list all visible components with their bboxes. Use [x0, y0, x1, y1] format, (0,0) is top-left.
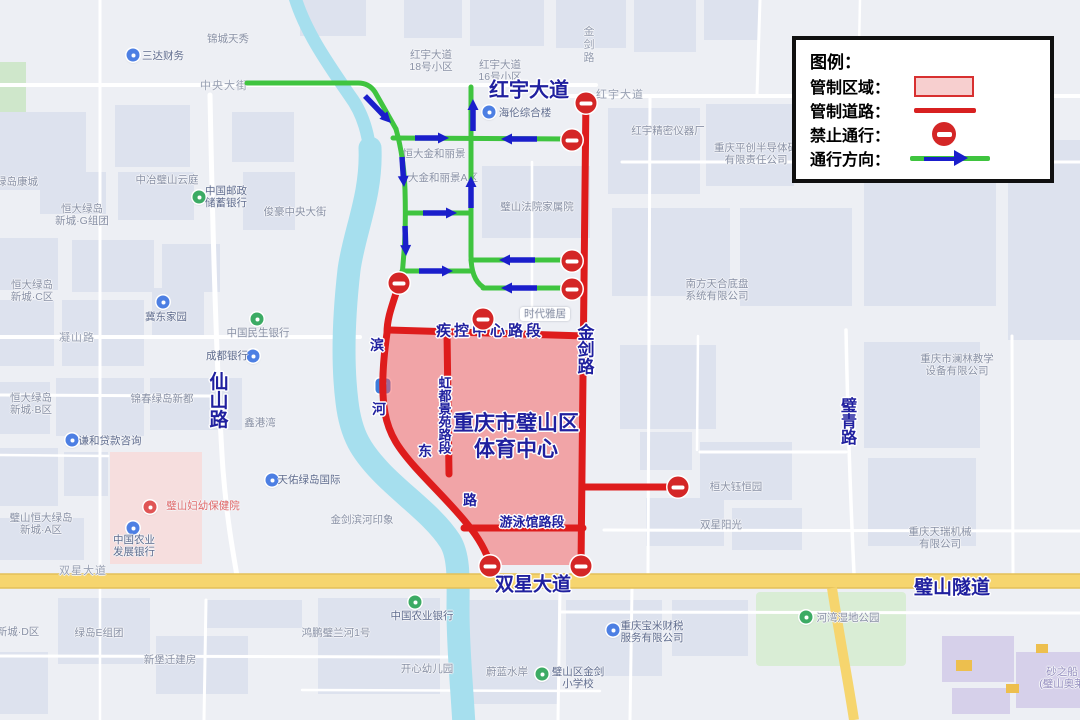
direction-arrow-shaft: [402, 157, 403, 177]
no-entry-sign-icon: [668, 477, 689, 498]
control-road-label: 红宇大道: [489, 74, 569, 103]
no-entry-sign-icon: [562, 279, 583, 300]
direction-arrow-head: [442, 266, 453, 277]
legend-noentry-icon: [932, 122, 956, 146]
legend-row: 管制道路：: [810, 98, 1038, 122]
direction-arrow-head: [466, 176, 477, 187]
control-road-label: 体育中心: [474, 433, 558, 463]
control-road-label: 滨: [370, 335, 384, 355]
no-entry-sign-icon: [571, 556, 592, 577]
legend-title: 图例：: [810, 48, 1038, 73]
control-road-label: 金剑路: [572, 324, 597, 375]
legend-item-label: 管制道路：: [810, 98, 906, 122]
no-entry-sign-icon: [480, 556, 501, 577]
no-entry-sign-icon: [473, 309, 494, 330]
control-road-label: 东: [418, 441, 432, 461]
direction-arrow-shaft: [365, 96, 384, 116]
no-entry-sign-icon: [389, 273, 410, 294]
legend-direction-arrow-icon: [910, 149, 990, 167]
no-entry-sign-icon: [562, 251, 583, 272]
traffic-control-map: 图例： 管制区域：管制道路：禁止通行：通行方向： 三达财务锦城天秀中央大街红宇大…: [0, 0, 1080, 720]
direction-arrow-head: [398, 176, 409, 187]
legend-arrow-part: [954, 150, 968, 166]
control-road-label: 仙山路: [204, 372, 231, 429]
no-entry-sign-icon: [576, 93, 597, 114]
direction-arrow-head: [501, 283, 512, 294]
direction-arrow-head: [468, 99, 479, 110]
control-road-label: 河: [372, 399, 386, 419]
direction-arrow-head: [499, 255, 510, 266]
control-road-label: 璧山隧道: [914, 573, 990, 600]
legend-row: 禁止通行：: [810, 122, 1038, 146]
legend-rows: 管制区域：管制道路：禁止通行：通行方向：: [810, 74, 1038, 170]
legend-area-icon: [914, 76, 974, 97]
no-entry-sign-icon: [562, 130, 583, 151]
legend-row: 管制区域：: [810, 74, 1038, 98]
direction-arrow-head: [438, 133, 449, 144]
legend-item-label: 禁止通行：: [810, 122, 906, 146]
legend-item-label: 通行方向：: [810, 146, 906, 170]
direction-arrow-head: [501, 134, 512, 145]
direction-arrow-head: [400, 245, 411, 256]
control-road-label: 游泳馆路段: [499, 512, 564, 531]
control-road-label: 虹都景苑路段: [435, 376, 454, 454]
legend: 图例： 管制区域：管制道路：禁止通行：通行方向：: [792, 36, 1054, 183]
legend-arrow-part: [924, 157, 956, 162]
legend-row: 通行方向：: [810, 146, 1038, 170]
direction-arrow-shaft: [405, 226, 406, 246]
control-road-label: 璧青路: [834, 397, 858, 445]
legend-item-label: 管制区域：: [810, 74, 906, 98]
control-road-label: 路: [463, 490, 477, 510]
direction-arrow-head: [446, 208, 457, 219]
legend-line-icon: [914, 108, 976, 113]
control-road-label: 双星大道: [495, 570, 571, 597]
